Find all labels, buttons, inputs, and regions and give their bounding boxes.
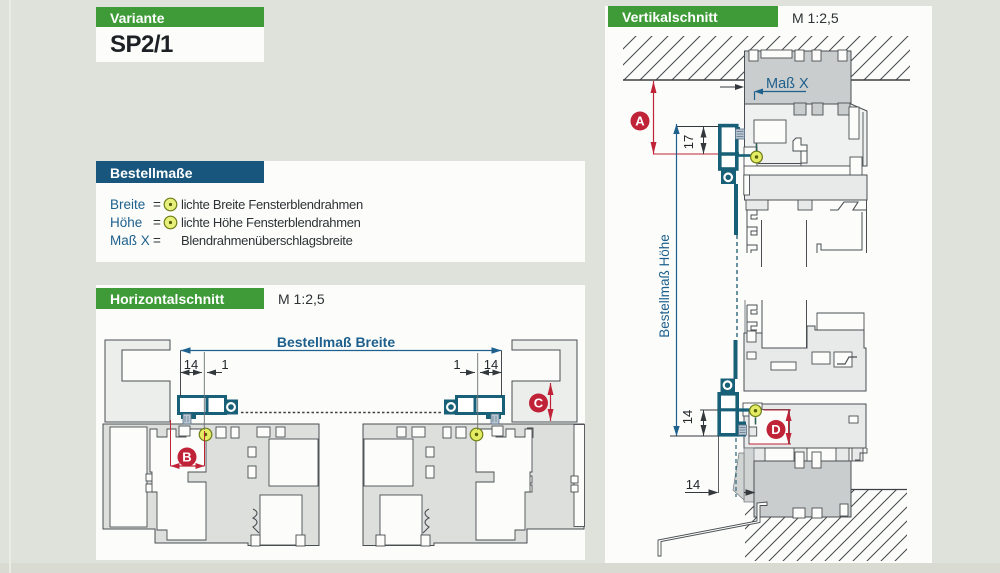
svg-text:Maß X: Maß X [766, 76, 809, 92]
svg-text:C: C [534, 396, 544, 411]
svg-text:14: 14 [184, 357, 198, 372]
svg-text:1: 1 [221, 357, 228, 372]
svg-text:17: 17 [681, 135, 696, 149]
svg-text:A: A [635, 114, 645, 129]
svg-text:D: D [771, 422, 780, 437]
svg-text:B: B [182, 450, 191, 465]
svg-text:1: 1 [453, 357, 460, 372]
svg-text:14: 14 [680, 410, 695, 424]
svg-text:Bestellmaß Breite: Bestellmaß Breite [277, 334, 395, 350]
svg-text:Bestellmaß Höhe: Bestellmaß Höhe [657, 234, 672, 338]
svg-text:14: 14 [484, 357, 498, 372]
svg-text:14: 14 [686, 477, 700, 492]
